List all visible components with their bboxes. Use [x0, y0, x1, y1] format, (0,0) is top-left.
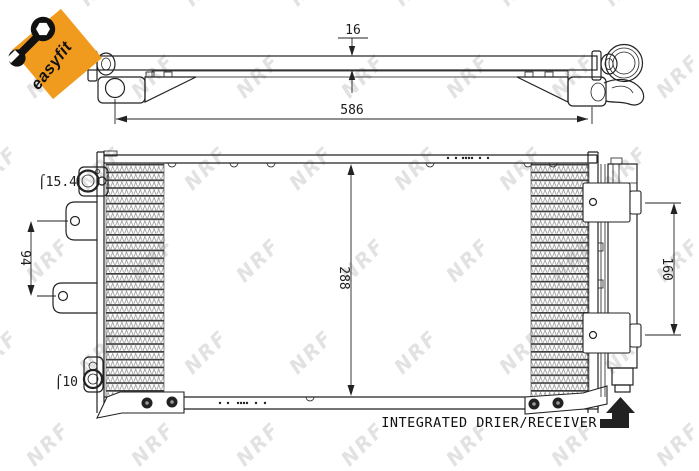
left-fin-core	[106, 163, 164, 397]
front-view: 94 ⌠15.4 ⌠10	[17, 151, 681, 431]
bottom-port-label: ⌠10	[55, 374, 78, 390]
dim-right-pitch: 160	[645, 203, 681, 335]
dim-height-label: 288	[336, 266, 351, 289]
dim-width: 586	[115, 99, 592, 124]
integrated-drier-label: INTEGRATED DRIER/RECEIVER	[381, 415, 597, 431]
right-bracket-upper	[583, 183, 641, 222]
top-port-label: ⌠15.4	[38, 174, 77, 190]
dim-thickness: 16	[338, 23, 368, 93]
dim-width-label: 586	[340, 103, 363, 118]
easyfit-badge: easyfit	[0, 0, 120, 120]
rivet-dots	[219, 157, 489, 404]
dim-left-pitch: 94	[17, 221, 68, 296]
right-fin-core	[531, 163, 589, 397]
right-bracket-lower	[583, 313, 641, 353]
top-edge-tabs	[168, 163, 557, 401]
top-view: 16 586	[58, 23, 644, 124]
dim-height: 288	[336, 164, 355, 396]
bottom-left-strap	[97, 392, 184, 418]
dim-right-pitch-label: 160	[659, 257, 674, 280]
dim-left-pitch-label: 94	[17, 250, 32, 266]
dim-thickness-label: 16	[345, 23, 361, 38]
bottom-port: ⌠10	[55, 357, 103, 392]
